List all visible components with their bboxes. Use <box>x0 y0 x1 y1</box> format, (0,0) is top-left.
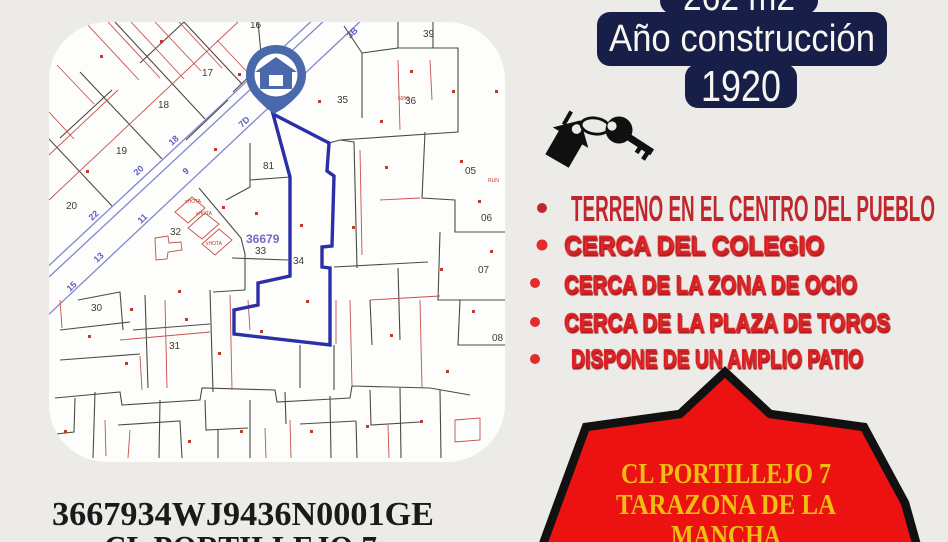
svg-text:16: 16 <box>250 20 262 31</box>
svg-text:33: 33 <box>255 246 267 257</box>
svg-text:19: 19 <box>116 146 128 157</box>
svg-text:31: 31 <box>169 341 181 352</box>
svg-text:CERCA DE LA ZONA DE OCIO: CERCA DE LA ZONA DE OCIO <box>564 271 857 299</box>
svg-text:3667934WJ9436N0001GE: 3667934WJ9436N0001GE <box>52 496 434 533</box>
svg-text:TARAZONA DE LA: TARAZONA DE LA <box>616 489 836 521</box>
svg-text:30: 30 <box>91 303 103 314</box>
svg-text:81: 81 <box>263 161 275 172</box>
svg-text:xHOTA: xHOTA <box>185 199 202 205</box>
svg-text:08: 08 <box>492 333 504 344</box>
svg-text:34: 34 <box>293 256 305 267</box>
svg-text:06: 06 <box>481 213 493 224</box>
svg-text:07: 07 <box>478 265 490 276</box>
svg-text:PORTILLEJA: PORTILLEJA <box>325 0 368 11</box>
svg-text:35: 35 <box>337 95 349 106</box>
svg-text:xHOTA: xHOTA <box>206 241 223 247</box>
svg-text:xHOTA: xHOTA <box>196 211 213 217</box>
svg-text:32: 32 <box>170 227 182 238</box>
svg-text:12: 12 <box>306 4 320 18</box>
svg-text:Año construcción: Año construcción <box>609 18 875 60</box>
svg-text:39: 39 <box>423 29 435 40</box>
svg-text:TERRENO EN EL CENTRO DEL PUEBL: TERRENO EN EL CENTRO DEL PUEBLO <box>571 188 935 229</box>
svg-text:CERCA DE LA PLAZA DE TOROS: CERCA DE LA PLAZA DE TOROS <box>564 309 890 337</box>
svg-text:CERCA DEL COLEGIO: CERCA DEL COLEGIO <box>564 230 824 260</box>
svg-text:05: 05 <box>465 166 477 177</box>
svg-text:20: 20 <box>66 201 78 212</box>
svg-text:262 m2: 262 m2 <box>683 0 795 19</box>
svg-text:17: 17 <box>202 68 214 79</box>
svg-text:RUN: RUN <box>488 178 499 184</box>
svg-text:36: 36 <box>405 96 417 107</box>
svg-text:CL PORTILLEJO 7: CL PORTILLEJO 7 <box>621 458 831 490</box>
svg-text:36679: 36679 <box>246 232 280 246</box>
svg-text:MANCHA: MANCHA <box>671 520 781 542</box>
svg-text:1920: 1920 <box>701 62 781 111</box>
svg-text:18: 18 <box>158 100 170 111</box>
svg-text:CL PORTILLEJO 7: CL PORTILLEJO 7 <box>104 530 377 542</box>
svg-text:DISPONE DE UN AMPLIO PATIO: DISPONE DE UN AMPLIO PATIO <box>571 345 863 373</box>
